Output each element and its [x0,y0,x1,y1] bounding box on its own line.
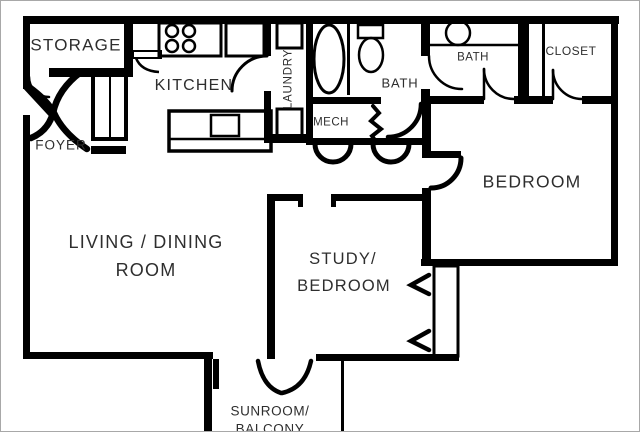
bathtub-icon [314,25,344,93]
island-sink-icon [211,115,239,136]
toilet-tank-icon [358,25,383,38]
bedroom-door-arc [431,158,461,188]
sink-icon [446,21,470,45]
opening-tick-right [331,201,336,207]
bifold-door-chevron [411,275,429,294]
burner-icon [183,25,195,37]
room-label-bath-main: BATH [382,77,419,90]
hall-door-swing [373,144,409,162]
french-door-arc [258,361,281,393]
kitchen-entry-arc-icon [136,58,159,72]
bifold-door-chevron [411,331,429,350]
wall-exterior-left-lower [23,115,30,359]
sunroom-door-leaf [213,359,219,389]
wall-bath2-left-lower [421,89,430,104]
wall-bedroom-left-upper [422,104,431,158]
wall-study-left [267,194,275,359]
study-closet-wall-icon [434,266,458,356]
wall-exterior-top [23,16,619,24]
toilet-bowl-icon [359,38,383,72]
mech-accordion-door [371,106,381,143]
french-door-arc [282,361,311,393]
room-label-living-dining-line1: LIVING / DINING [68,233,223,251]
wall-laundry-right [306,16,313,143]
room-label-living-dining-line2: ROOM [116,261,177,279]
bath-main-door-arc [388,104,421,137]
wall-living-bottom [23,352,213,359]
burner-icon [166,25,178,37]
walls [23,16,619,432]
foyer-door-swing [31,72,81,138]
room-label-bedroom: BEDROOM [483,173,582,191]
closet-door-arc [553,70,582,99]
burner-icon [183,40,195,52]
wall-sunroom-right-thin [341,361,344,432]
wall-sunroom-left [204,359,212,432]
wall-study-top-b [331,194,425,201]
wall-bath2-left-upper [421,16,430,56]
fixtures [93,21,518,356]
room-label-study-line2: BEDROOM [297,278,391,295]
room-label-kitchen: KITCHEN [155,78,234,94]
room-label-storage: STORAGE [30,37,121,54]
burner-icon [166,40,178,52]
room-label-sunroom-line2: BALCONY [236,422,305,432]
opening-tick-left [298,201,303,207]
wall-bedroom-top-c [582,96,618,104]
wall-bedroom-top-a [429,96,484,104]
kitchen-island-icon [169,111,271,151]
wall-closet-left-thin [542,23,545,99]
hall-door-swing [315,144,351,162]
wall-exterior-right [611,16,618,266]
room-label-closet: CLOSET [545,45,596,57]
bedroom-door-leaf [431,151,461,158]
room-label-bath-second: BATH [457,52,489,64]
wall-mech-top [306,97,381,104]
bath-bedroom-door-arc [484,69,514,99]
wall-bath2-closet-divider [518,16,529,101]
room-label-foyer: FOYER [35,138,87,152]
room-label-mech: MECH [313,117,349,129]
room-label-study-line1: STUDY/ [309,251,377,268]
wall-foyer-closet-bottom-stub [91,146,126,154]
wall-storage-right [124,16,133,77]
dryer-icon [277,109,302,137]
washer-icon [277,23,302,48]
floor-plan-drawing [1,1,640,432]
kitchen-door-arc [232,56,267,91]
counter-icon [226,23,264,56]
wall-tub-divider-thin [347,19,350,95]
room-label-laundry: LAUNDRY [283,49,295,109]
room-label-sunroom-line1: SUNROOM/ [230,404,309,418]
counter-stub-icon [133,51,161,58]
floor-plan: STORAGE KITCHEN LAUNDRY FOYER MECH BATH … [0,0,640,432]
